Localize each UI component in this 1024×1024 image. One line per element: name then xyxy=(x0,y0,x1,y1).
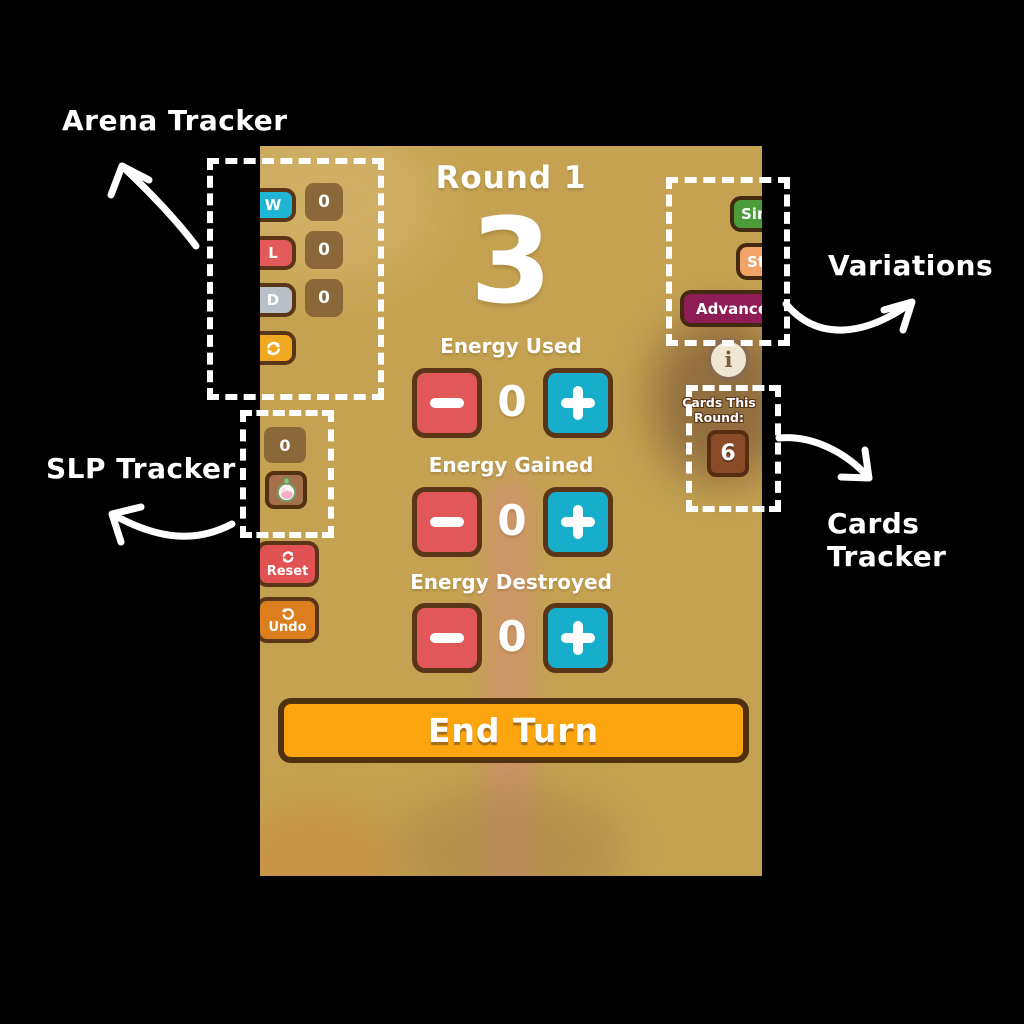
sta-variation-button[interactable]: Sta xyxy=(736,243,762,280)
advance-variation-button[interactable]: Advance xyxy=(680,290,762,327)
cards-this-round-label: Cards This Round: xyxy=(676,395,762,425)
energy-destroyed-value: 0 xyxy=(482,612,542,661)
undo-button[interactable]: Undo xyxy=(260,597,319,643)
sim-variation-button[interactable]: Sim xyxy=(730,196,762,232)
minus-icon xyxy=(430,517,464,527)
draw-counter: 0 xyxy=(305,279,343,317)
undo-button-label: Undo xyxy=(268,621,306,635)
plus-icon xyxy=(561,505,595,539)
arena-tracker-annotation: Arena Tracker xyxy=(62,104,288,137)
energy-destroyed-plus-button[interactable] xyxy=(543,603,613,673)
slp-tracker-arrow xyxy=(112,507,232,542)
win-counter: 0 xyxy=(305,183,343,221)
slp-tracker-annotation: SLP Tracker xyxy=(46,452,236,485)
energy-gained-plus-button[interactable] xyxy=(543,487,613,557)
energy-gained-value: 0 xyxy=(482,496,542,545)
end-turn-button[interactable]: End Turn xyxy=(278,698,749,763)
cards-tracker-annotation: Cards Tracker xyxy=(827,507,1024,573)
energy-gained-label: Energy Gained xyxy=(260,453,762,477)
annotated-screenshot: Round 1 3 W 0 L 0 D 0 0 xyxy=(0,0,1024,1024)
energy-used-minus-button[interactable] xyxy=(412,368,482,438)
win-button[interactable]: W xyxy=(260,188,296,222)
energy-used-value: 0 xyxy=(482,377,542,426)
plus-icon xyxy=(561,386,595,420)
variations-arrow xyxy=(786,302,912,330)
variations-annotation: Variations xyxy=(828,249,993,282)
tracker-app: Round 1 3 W 0 L 0 D 0 0 xyxy=(260,146,762,876)
draw-button-label: D xyxy=(267,291,279,309)
end-turn-label: End Turn xyxy=(428,711,599,750)
sim-button-label: Sim xyxy=(741,205,762,223)
background-blob xyxy=(260,801,395,876)
undo-icon xyxy=(280,605,296,621)
loss-counter: 0 xyxy=(305,231,343,269)
reset-refresh-icon xyxy=(280,549,296,565)
plus-icon xyxy=(561,621,595,655)
win-button-label: W xyxy=(265,196,282,214)
loss-button[interactable]: L xyxy=(260,236,296,270)
arena-tracker-arrow xyxy=(111,166,196,246)
advance-button-label: Advance xyxy=(696,300,762,318)
energy-used-plus-button[interactable] xyxy=(543,368,613,438)
loss-button-label: L xyxy=(268,244,278,262)
minus-icon xyxy=(430,398,464,408)
energy-destroyed-label: Energy Destroyed xyxy=(260,570,762,594)
energy-gained-minus-button[interactable] xyxy=(412,487,482,557)
background-blob xyxy=(395,786,625,876)
sta-button-label: Sta xyxy=(747,253,762,271)
minus-icon xyxy=(430,633,464,643)
slp-potion-icon xyxy=(275,477,298,503)
energy-used-label: Energy Used xyxy=(260,334,762,358)
cards-tracker-arrow xyxy=(779,438,869,478)
energy-destroyed-minus-button[interactable] xyxy=(412,603,482,673)
draw-button[interactable]: D xyxy=(260,283,296,317)
